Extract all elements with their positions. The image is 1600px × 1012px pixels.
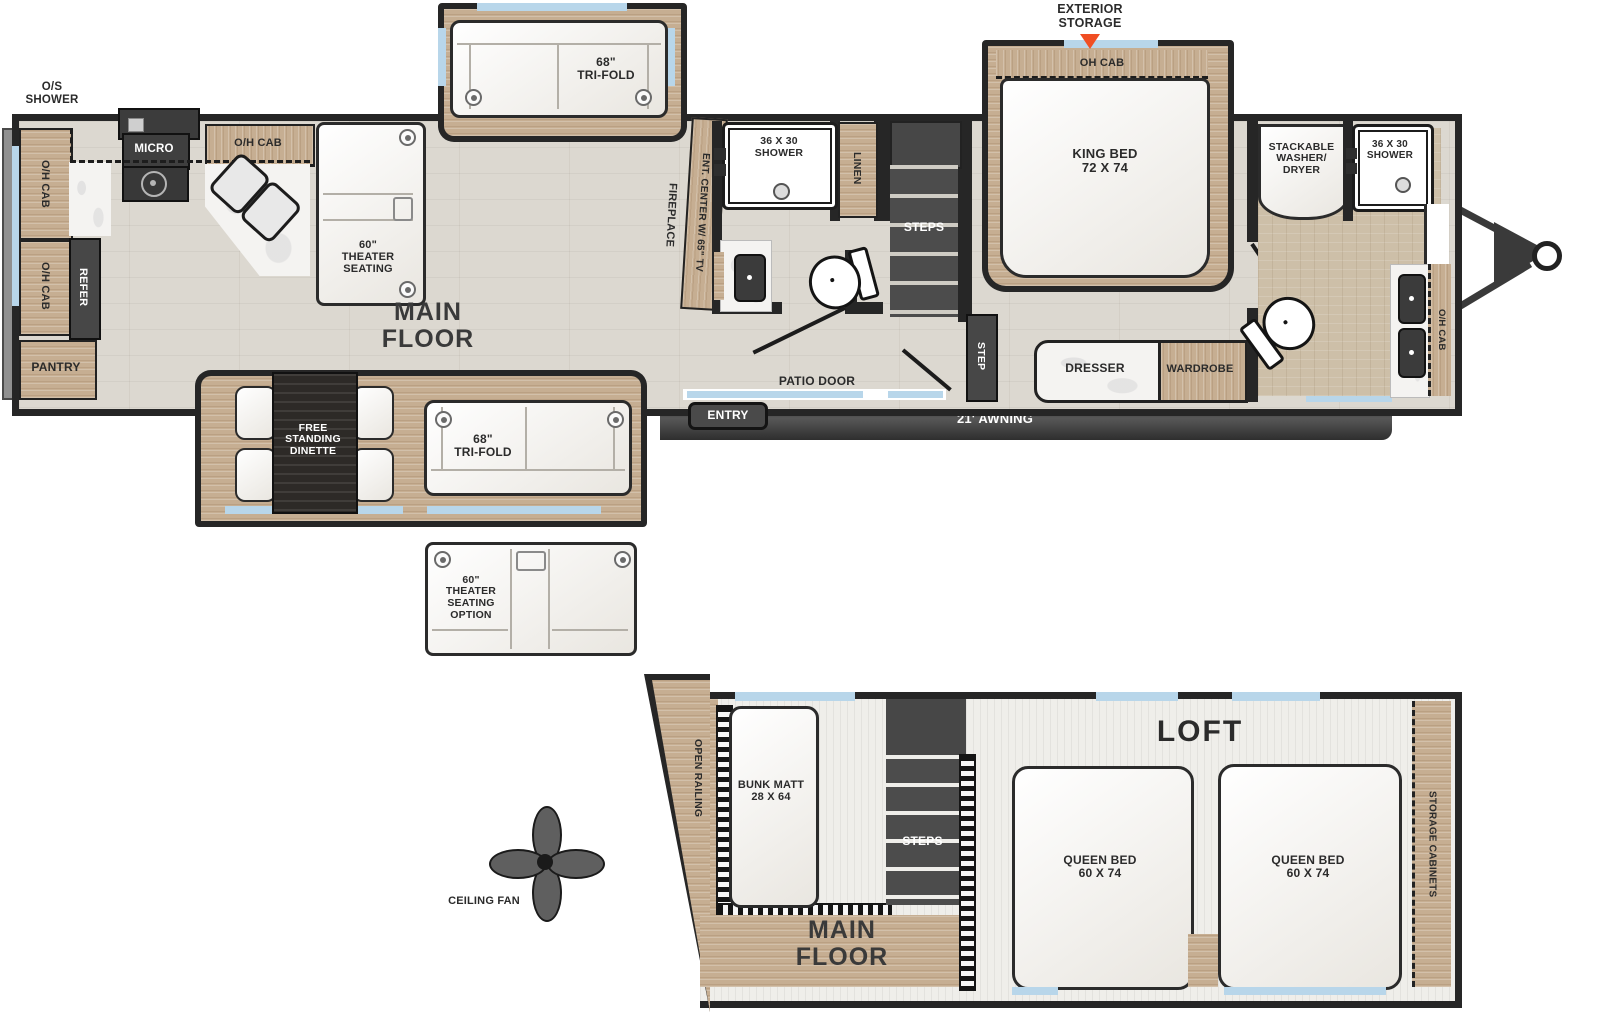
washer-dryer: STACKABLE WASHER/ DRYER: [1258, 124, 1349, 220]
oh-cab-lower-left-label: O/H CAB: [35, 246, 55, 326]
oh-cab-dashed-line: [70, 160, 310, 163]
queen-bed-1-label: QUEEN BED 60 X 74: [1050, 849, 1150, 885]
bunk-matt: BUNK MATT 28 X 64: [729, 706, 819, 908]
oh-cab-front-label: O/H CAB: [1432, 274, 1450, 386]
dinette-table: FREE STANDING DINETTE: [272, 372, 358, 514]
microwave: MICRO: [122, 133, 190, 170]
hitch-coupler: [1532, 241, 1562, 271]
window-entry: [888, 391, 943, 398]
linen-label: LINEN: [847, 128, 865, 208]
loft-steps-label: STEPS: [886, 834, 959, 850]
cooktop: [122, 166, 189, 202]
loft-steps-landing: [886, 699, 966, 755]
oh-cab-dashed-line-v: [70, 128, 73, 162]
loft-steps: [886, 755, 959, 905]
fireplace-label: FIREPLACE: [658, 175, 684, 254]
fan-hub-icon: [537, 854, 553, 870]
oh-cab-upper-left: O/H CAB: [19, 128, 73, 240]
fan-blade-icon: [547, 849, 605, 879]
storage-cabinets-label: STORAGE CABINETS: [1422, 721, 1442, 967]
sofa-seam: [432, 629, 508, 631]
counter-left: [69, 162, 111, 236]
patio-door-glass: [687, 391, 863, 398]
oh-cab-top-label: O/H CAB: [207, 130, 309, 156]
shower-head-icon: [714, 164, 726, 176]
theater-seating-label: 60" THEATER SEATING: [325, 227, 411, 287]
shower-front: 36 X 30 SHOWER: [1352, 124, 1434, 212]
front-cap-notch: [1424, 204, 1449, 266]
patio-door-label: PATIO DOOR: [762, 374, 872, 389]
sofa-seam: [525, 407, 527, 469]
king-bed: KING BED 72 X 74: [1000, 78, 1210, 278]
sofa-screw-icon: [614, 551, 631, 568]
sofa-screw-icon: [465, 89, 482, 106]
dresser-label: DRESSER: [1037, 359, 1153, 379]
sofa-seam: [510, 549, 512, 649]
sofa-seam: [431, 469, 625, 471]
oh-cab-lower-left: O/H CAB: [19, 240, 73, 336]
exterior-storage-arrow-icon: [1080, 34, 1100, 49]
pantry-label: PANTRY: [21, 356, 91, 380]
wardrobe: WARDROBE: [1158, 340, 1248, 403]
king-bed-label: KING BED 72 X 74: [1055, 139, 1155, 183]
refrigerator: REFER: [69, 238, 101, 340]
entry-badge: ENTRY: [688, 402, 768, 430]
theater-seating-option: 60" THEATER SEATING OPTION: [425, 542, 637, 656]
bunk-matt-label: BUNK MATT 28 X 64: [734, 773, 808, 809]
king-slide-window: [1064, 40, 1158, 48]
dinette-chair: [235, 448, 277, 502]
loft-window: [1012, 987, 1058, 995]
sofa-trifold-bottom: 68" TRI-FOLD: [424, 400, 632, 496]
sofa-seam: [323, 193, 413, 195]
slide-top-window-left: [438, 28, 446, 86]
dresser: DRESSER: [1034, 340, 1162, 403]
exterior-storage-label: EXTERIOR STORAGE: [1028, 2, 1152, 32]
faucet-icon: [1409, 296, 1414, 301]
burner-center-icon: [150, 180, 156, 186]
refrigerator-label: REFER: [74, 244, 92, 330]
slide-top-window: [477, 3, 627, 11]
sofa-seam: [457, 43, 661, 45]
sofa-trifold-top: 68" TRI-FOLD: [450, 20, 668, 118]
oh-cab-bed: OH CAB: [996, 50, 1208, 79]
bedroom-step-label: STEP: [971, 320, 989, 392]
slide-bottom-window2: [427, 506, 601, 514]
sofa-seam: [548, 549, 550, 649]
open-railing-label: OPEN RAILING: [688, 724, 706, 832]
faucet-icon: [747, 275, 752, 280]
vanity-front-sink: [1398, 274, 1426, 324]
vanity-mid-side: [714, 252, 724, 300]
drain-icon: [1395, 177, 1411, 193]
vanity-mid-sink: [734, 254, 766, 302]
theater-option-label: 60" THEATER SEATING OPTION: [432, 567, 510, 629]
faucet-icon: [1409, 350, 1414, 355]
loft-wood-gap: [1188, 934, 1218, 987]
loft-window: [1224, 987, 1386, 995]
sofa-trifold-top-label: 68" TRI-FOLD: [563, 47, 649, 91]
loft-window: [1096, 692, 1178, 701]
pantry: PANTRY: [19, 340, 97, 400]
sofa-screw-icon: [434, 551, 451, 568]
oh-cab-front: O/H CAB: [1428, 264, 1451, 396]
main-floor-label: MAIN FLOOR: [352, 312, 504, 340]
steps-mid-label: STEPS: [890, 220, 958, 236]
queen-bed-2: QUEEN BED 60 X 74: [1218, 764, 1402, 990]
rv-floorplan: 21' AWNING 68" TRI-FOLD OH CAB KING BED …: [0, 0, 1600, 1012]
wardrobe-label: WARDROBE: [1161, 359, 1239, 379]
theater-seating-60: 60" THEATER SEATING: [316, 122, 426, 306]
sofa-seam: [552, 629, 628, 631]
loft-window: [735, 692, 855, 701]
dinette-chair: [352, 448, 394, 502]
linen-cabinet: LINEN: [838, 122, 878, 218]
shower-mid: 36 X 30 SHOWER: [722, 122, 838, 210]
loft-title: LOFT: [1140, 712, 1260, 750]
shower-head-icon: [1346, 148, 1357, 159]
drain-icon: [773, 183, 790, 200]
cup-holder-icon: [516, 551, 546, 571]
steps-mid-landing: [890, 121, 962, 169]
loft-window: [1232, 692, 1320, 701]
dinette-chair: [235, 386, 277, 440]
steps-mid: [890, 165, 958, 317]
shower-head-icon: [128, 118, 144, 132]
sofa-seam: [557, 45, 559, 109]
dinette-label: FREE STANDING DINETTE: [276, 410, 350, 470]
ceiling-fan-label: CEILING FAN: [444, 894, 524, 908]
outside-shower-label: O/S SHOWER: [10, 80, 94, 108]
sofa-screw-icon: [607, 411, 624, 428]
oh-cab-upper-left-label: O/H CAB: [35, 138, 55, 230]
vanity-front-sink: [1398, 328, 1426, 378]
wall: [1247, 121, 1258, 242]
shower-head-icon: [714, 148, 726, 160]
loft-main-floor-label: MAIN FLOOR: [766, 930, 918, 958]
slide-top-window-right: [667, 28, 675, 86]
sofa-screw-icon: [635, 89, 652, 106]
queen-bed-2-label: QUEEN BED 60 X 74: [1258, 849, 1358, 885]
shower-head-icon: [1346, 163, 1357, 174]
shower-front-label: 36 X 30 SHOWER: [1359, 135, 1421, 165]
washer-dryer-label: STACKABLE WASHER/ DRYER: [1263, 135, 1340, 183]
bedroom-step: STEP: [966, 314, 998, 402]
loft-storage-cabinets: STORAGE CABINETS: [1412, 701, 1451, 987]
dinette-chair: [352, 386, 394, 440]
sofa-screw-icon: [399, 129, 416, 146]
sofa-trifold-bottom-label: 68" TRI-FOLD: [441, 425, 525, 467]
cup-holder-icon: [393, 197, 413, 221]
loft-railing-v2: [959, 754, 976, 991]
shower-mid-label: 36 X 30 SHOWER: [739, 133, 819, 163]
queen-bed-1: QUEEN BED 60 X 74: [1012, 766, 1194, 990]
